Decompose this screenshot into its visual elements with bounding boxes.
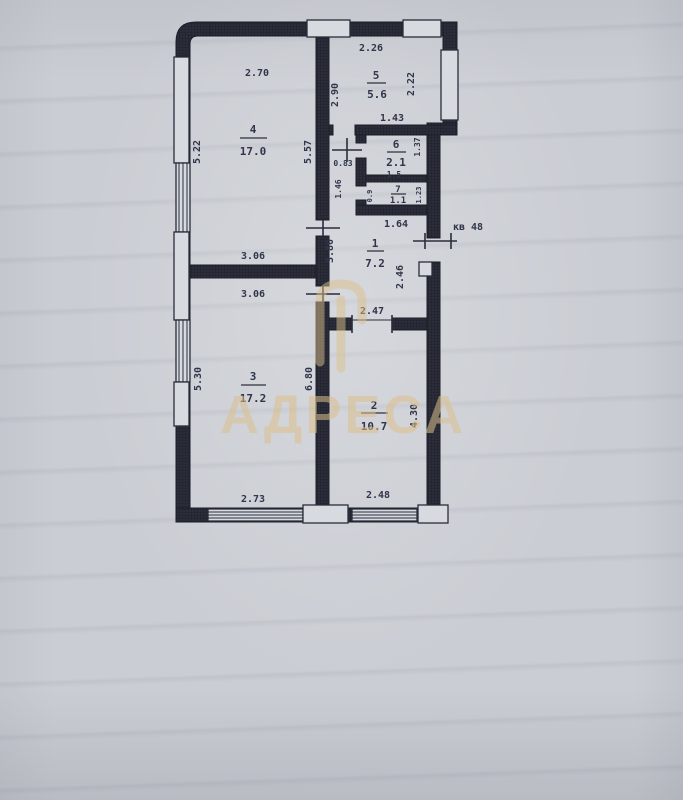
wall-hall-room2-b [392,318,427,330]
wall-kitchen-bottom-b [355,125,457,135]
dim-wc-left: 0.9 [366,190,374,203]
room-6-area: 2.1 [386,156,406,169]
wall-right-lower-a [427,123,440,238]
room-4-number: 4 [250,123,257,136]
window-bottom-room2 [352,509,417,521]
room-7-area: 1.1 [390,196,406,206]
sill-left-2 [174,232,189,320]
window-kitchen-right [441,50,458,120]
wall-bath-left-a [356,135,366,143]
wall-main-vertical-a [316,36,329,220]
door-room4 [306,220,340,236]
room-1-label: 1 7.2 [365,237,385,270]
dim-door-width: 0.83 [333,159,352,168]
dim-hall-right: 2.46 [395,265,406,289]
room-7-label: 7 1.1 [390,185,406,206]
window-top-1 [307,20,350,37]
window-left-room3 [176,320,190,382]
dim-room2-bottom: 2.48 [366,490,390,501]
room-6-number: 6 [393,138,400,151]
dim-bath-top: 1.43 [380,113,404,124]
floor-plan-svg: 2.70 5.22 5.57 3.06 3.06 5.30 6.80 2.73 … [0,0,683,800]
dim-divider-upper: 3.06 [241,251,265,262]
sill-left-1 [174,57,189,163]
room-4-label: 4 17.0 [240,123,267,158]
dim-kitchen-right: 2.22 [406,72,417,96]
window-left-room4 [176,163,190,232]
dim-bath-inner: 1.5 [387,170,402,179]
dim-room4-top: 2.70 [245,68,269,79]
room-6-label: 6 2.1 [386,138,406,169]
wall-bath-bottom [356,205,427,215]
wall-top-left-corner [176,22,212,60]
sill-bottom-2 [418,505,448,523]
dim-kitchen-left: 2.90 [330,83,341,107]
dim-bath-right: 1.37 [413,137,422,156]
dim-wc-right: 1.23 [415,187,423,204]
dim-hall-top: 1.64 [384,219,408,230]
sill-bottom-1 [303,505,348,523]
wall-kitchen-bottom-a [329,125,333,135]
dim-left-upper: 5.22 [192,140,203,164]
room-3-number: 3 [250,370,257,383]
window-bottom-room3 [208,509,303,521]
room-5-number: 5 [373,69,380,82]
dim-divider-lower: 3.06 [241,289,265,300]
window-top-2 [403,20,441,37]
room-4-area: 17.0 [240,145,267,158]
dim-room4-right: 5.57 [303,140,314,164]
dim-left-lower: 5.30 [193,367,204,391]
wall-room4-room3-divider [190,265,316,278]
watermark-text: АДРЕСА [220,385,466,445]
apartment-label: кв 48 [453,222,483,233]
dim-hall-left: 3.80 [325,239,336,263]
sill-left-3 [174,382,189,426]
room-5-label: 5 5.6 [367,69,387,101]
dim-passage-left: 1.46 [334,179,343,198]
wall-bath-left-b [356,158,366,186]
room-1-number: 1 [372,237,379,250]
dim-kitchen-top: 2.26 [359,43,383,54]
room-1-area: 7.2 [365,257,385,270]
room-5-area: 5.6 [367,88,387,101]
dim-room3-bottom: 2.73 [241,494,265,505]
